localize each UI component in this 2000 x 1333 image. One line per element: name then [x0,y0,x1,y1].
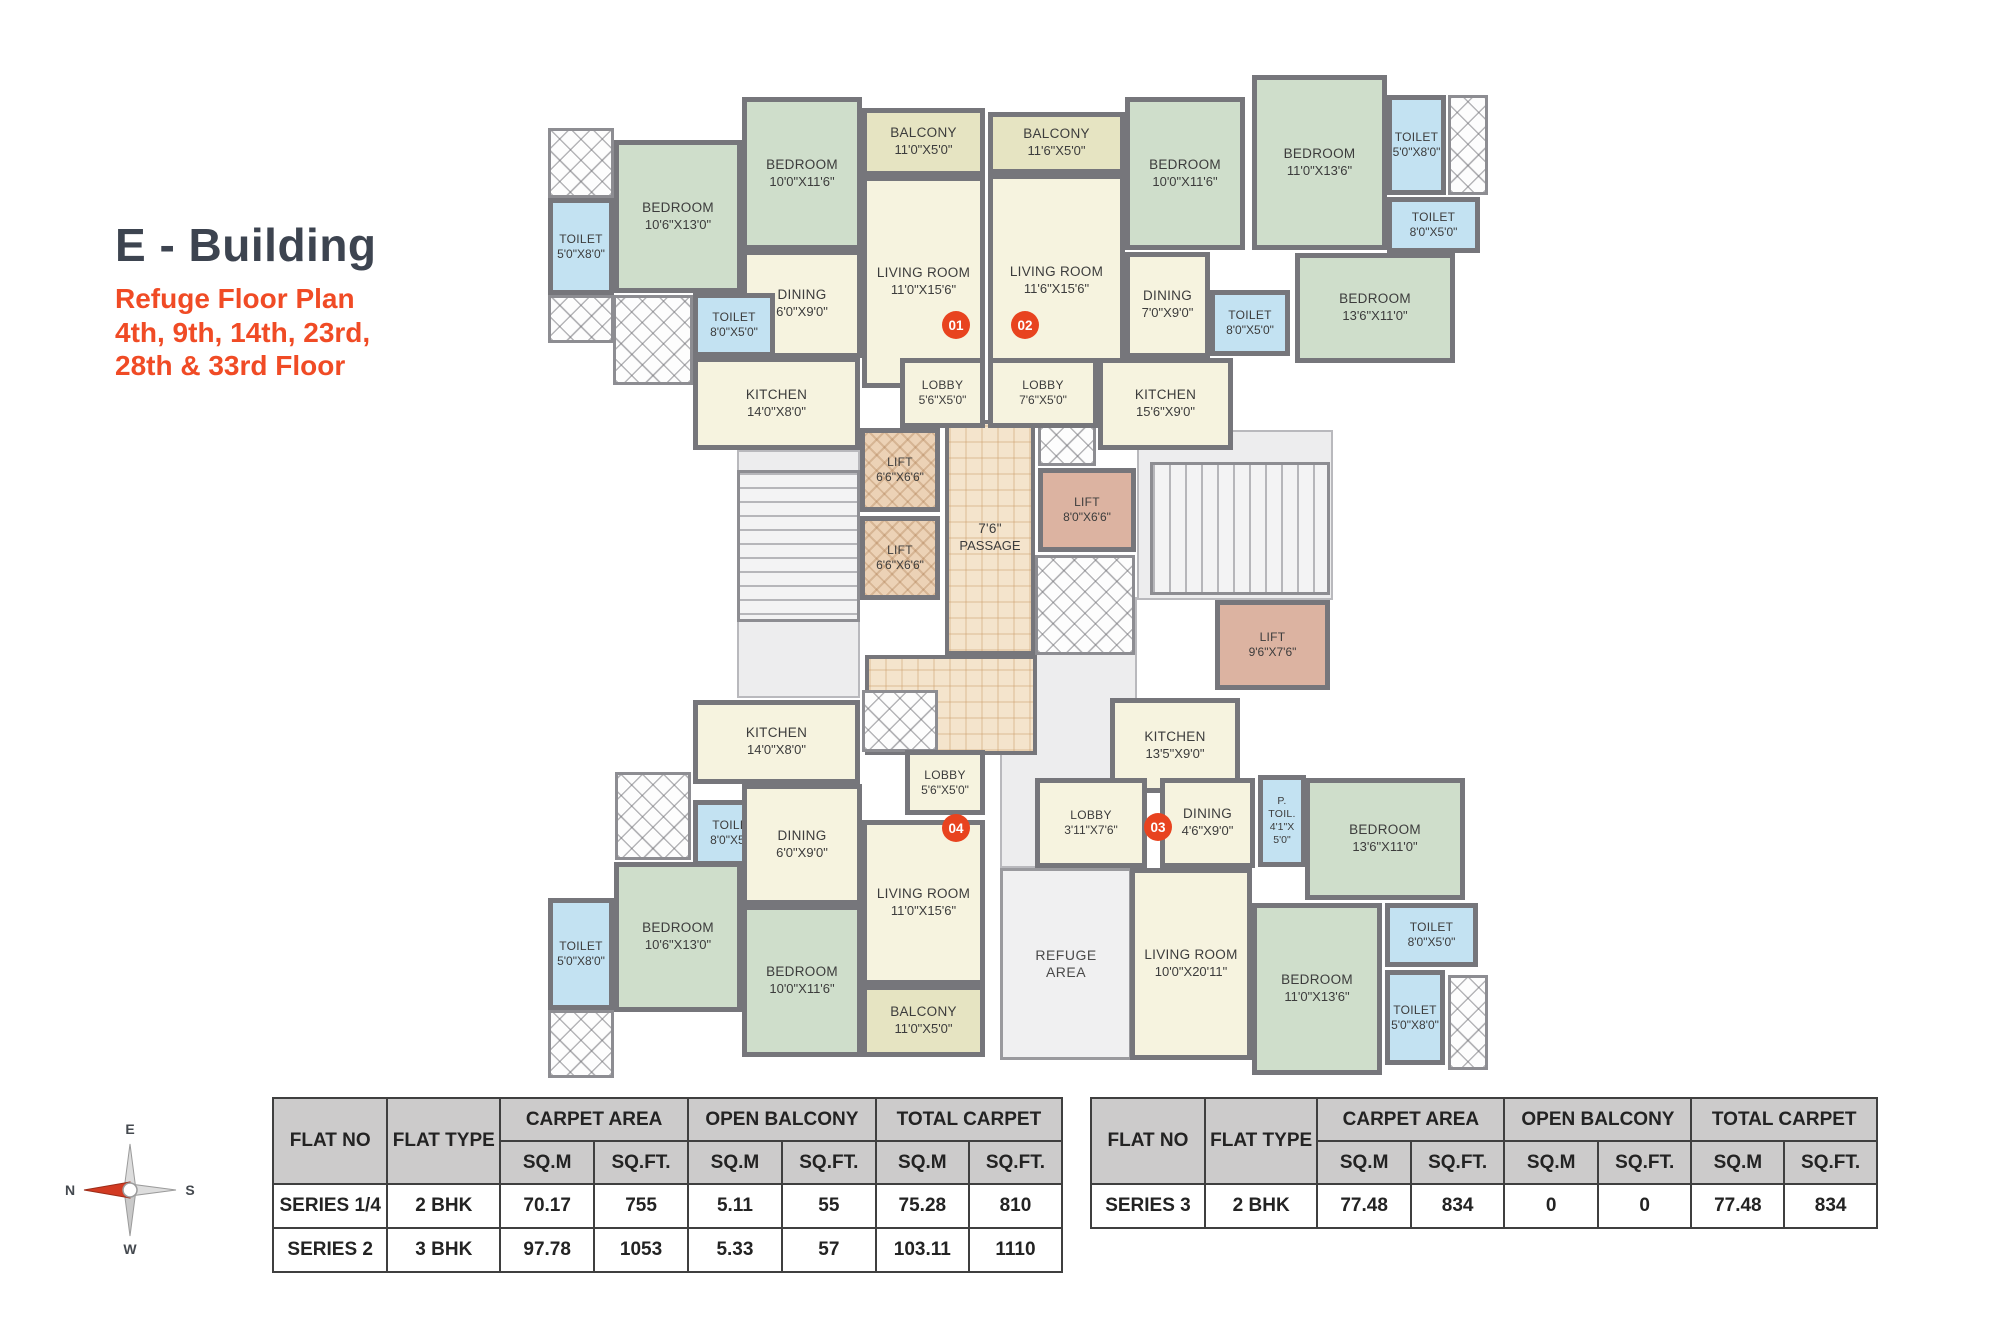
room-dimensions: 8'0"X5'0" [710,325,758,340]
room-label: LOBBY [922,378,964,393]
room-label: LOBBY [1070,808,1112,823]
room-label: DINING [777,287,826,304]
room-toilet-8-0-x5-0: TOILET8'0"X5'0" [1210,290,1290,356]
room-toilet-5-0-x8-0: TOILET5'0"X8'0" [548,198,614,295]
room-label: BALCONY [890,1004,957,1021]
feature-shaft [615,772,691,860]
room-dimensions: 5'6"X5'0" [919,393,967,408]
room-label: TOILET [712,310,756,325]
room-dimensions: 10'0"X20'11" [1155,964,1228,980]
room-dimensions: 14'0"X8'0" [747,404,806,420]
compass-rose: E N S W [62,1122,198,1258]
col-subheader-carpet-area-sq-m: SQ.M [500,1141,594,1184]
room-label: KITCHEN [1135,387,1196,404]
room-bedroom-10-6-x13-0: BEDROOM10'6"X13'0" [614,862,742,1012]
col-group-header-carpet-area: CARPET AREA [1317,1098,1504,1141]
room-living-room-11-6-x15-6: LIVING ROOM11'6"X15'6" [988,174,1125,388]
room-toilet-8-0-x5-0: TOILET8'0"X5'0" [1387,197,1480,253]
room-dimensions: 5'6"X5'0" [921,783,969,798]
col-subheader-carpet-area-sq-ft: SQ.FT. [594,1141,688,1184]
room-dimensions: 14'0"X8'0" [747,742,806,758]
room-label: BEDROOM [766,964,838,981]
table-cell: 834 [1784,1184,1877,1228]
compass-letter-right: S [185,1182,194,1198]
room-lobby-7-6-x5-0: LOBBY7'6"X5'0" [988,358,1098,428]
room-balcony-11-0-x5-0: BALCONY11'0"X5'0" [862,985,985,1057]
room-dimensions: 9'6"X7'6" [1249,645,1297,660]
table-cell: 5.33 [688,1228,782,1272]
room-label: LIFT [1074,495,1100,510]
room-refuge-area: REFUGEAREA [1000,868,1132,1060]
compass-letter-bottom: W [123,1241,137,1257]
room-toilet-5-0-x8-0: TOILET5'0"X8'0" [1385,970,1445,1065]
room-living-room-11-0-x15-6: LIVING ROOM11'0"X15'6" [862,176,985,388]
room-dimensions: 6'6"X6'6" [876,470,924,485]
room-dimensions: 3'11"X7'6" [1064,823,1118,838]
room-dimensions: 5'0"X8'0" [557,954,605,969]
col-group-header-total-carpet: TOTAL CARPET [1691,1098,1877,1141]
room-toilet-5-0-x8-0: TOILET5'0"X8'0" [1387,95,1446,195]
room-dimensions: 6'0"X9'0" [776,845,828,861]
table-cell: 5.11 [688,1184,782,1228]
room-dimensions: 10'6"X13'0" [645,937,711,953]
feature-shaft [548,128,614,198]
room-label: KITCHEN [746,387,807,404]
room-lift-8-0-x6-6: LIFT8'0"X6'6" [1038,468,1136,552]
room-label: BEDROOM [1284,146,1356,163]
room-label: LIFT [887,455,913,470]
feature-stairs-v [1150,462,1330,595]
room-label: TOILET [1228,308,1272,323]
room-dimensions: 6'6"X6'6" [876,558,924,573]
col-group-header-carpet-area: CARPET AREA [500,1098,688,1141]
room-label: LIVING ROOM [877,265,970,282]
room-label: P. TOIL. [1263,795,1301,821]
col-subheader-open-balcony-sq-ft: SQ.FT. [1598,1141,1692,1184]
room-dimensions: 11'0"X15'6" [891,903,956,919]
col-subheader-total-carpet-sq-ft: SQ.FT. [969,1141,1062,1184]
room-label: BEDROOM [766,157,838,174]
room-dimensions: 5'0"X8'0" [1393,145,1441,160]
col-subheader-total-carpet-sq-ft: SQ.FT. [1784,1141,1877,1184]
table-row-series-1-4: SERIES 1/42 BHK70.177555.115575.28810 [273,1184,1062,1228]
col-header-flat-type: FLAT TYPE [1205,1098,1317,1184]
room-bedroom-11-0-x13-6: BEDROOM11'0"X13'6" [1252,903,1382,1075]
room-dimensions: 10'0"X11'6" [1152,174,1217,190]
room-label: BEDROOM [1281,972,1353,989]
room-toilet-8-0-x5-0: TOILET8'0"X5'0" [693,293,775,357]
col-subheader-carpet-area-sq-ft: SQ.FT. [1411,1141,1505,1184]
room-living-room-10-0-x20-11: LIVING ROOM10'0"X20'11" [1130,868,1252,1060]
room-dining-6-0-x9-0: DINING6'0"X9'0" [742,784,862,905]
room-label: TOILET [559,939,603,954]
room-dimensions: 11'6"X15'6" [1024,281,1089,297]
room-dining-7-0-x9-0: DINING7'0"X9'0" [1125,252,1210,358]
col-subheader-total-carpet-sq-m: SQ.M [1691,1141,1784,1184]
room-dimensions: 13'6"X11'0" [1352,839,1417,855]
room-label: TOILET [1410,920,1454,935]
room-label: BEDROOM [1349,822,1421,839]
room-label: DINING [777,828,826,845]
floor-plan: REFUGEAREA7'6"PASSAGELIFT6'6"X6'6"LIFT6'… [0,0,2000,1120]
room-bedroom-10-0-x11-6: BEDROOM10'0"X11'6" [742,97,862,250]
table-cell: 57 [782,1228,876,1272]
col-subheader-carpet-area-sq-m: SQ.M [1317,1141,1411,1184]
room-label: BEDROOM [1339,291,1411,308]
room-kitchen-14-0-x8-0: KITCHEN14'0"X8'0" [693,357,860,450]
table-cell: 77.48 [1317,1184,1411,1228]
col-subheader-open-balcony-sq-ft: SQ.FT. [782,1141,876,1184]
table-cell: 1110 [969,1228,1062,1272]
col-subheader-open-balcony-sq-m: SQ.M [688,1141,782,1184]
flat-number-badge-04: 04 [942,814,970,842]
room-lift-6-6-x6-6: LIFT6'6"X6'6" [860,516,940,600]
room-bedroom-10-0-x11-6: BEDROOM10'0"X11'6" [1125,97,1245,250]
room-bedroom-13-6-x11-0: BEDROOM13'6"X11'0" [1295,253,1455,363]
room-label: KITCHEN [746,725,807,742]
room-balcony-11-6-x5-0: BALCONY11'6"X5'0" [988,112,1125,174]
room-dimensions: 11'0"X5'0" [894,1021,952,1037]
col-subheader-total-carpet-sq-m: SQ.M [876,1141,969,1184]
room-bedroom-10-0-x11-6: BEDROOM10'0"X11'6" [742,905,862,1057]
room-p-toil-4-1-x-5-0: P. TOIL.4'1"X 5'0" [1258,775,1306,867]
room-label: LOBBY [1022,378,1064,393]
room-toilet-5-0-x8-0: TOILET5'0"X8'0" [548,898,614,1010]
room-dimensions: 13'5"X9'0" [1145,746,1204,762]
col-header-flat-no: FLAT NO [1091,1098,1205,1184]
feature-stairs-h [737,470,860,622]
room-lobby-5-6-x5-0: LOBBY5'6"X5'0" [905,750,985,815]
room-label: BEDROOM [642,200,714,217]
room-kitchen-14-0-x8-0: KITCHEN14'0"X8'0" [693,700,860,784]
room-bedroom-11-0-x13-6: BEDROOM11'0"X13'6" [1252,75,1387,250]
col-group-header-total-carpet: TOTAL CARPET [876,1098,1062,1141]
room-dimensions: 6'0"X9'0" [776,304,828,320]
room-dimensions: 5'0"X8'0" [1391,1018,1439,1033]
table-row-series-2: SERIES 23 BHK97.7810535.3357103.111110 [273,1228,1062,1272]
room-dimensions: 10'0"X11'6" [769,174,834,190]
room-dimensions: 11'0"X13'6" [1284,989,1349,1005]
flat-number-badge-01: 01 [942,311,970,339]
room-dimensions: 4'6"X9'0" [1182,823,1234,839]
table-cell: 3 BHK [387,1228,500,1272]
table-cell: 77.48 [1691,1184,1784,1228]
room-label: KITCHEN [1144,729,1205,746]
room-label: TOILET [1412,210,1456,225]
compass-letter-left: N [65,1182,75,1198]
room-label: LIVING ROOM [1144,947,1237,964]
table-cell: 75.28 [876,1184,969,1228]
feature-shaft [613,295,693,385]
room-label: BALCONY [1023,126,1090,143]
room-label: TOILET [1393,1003,1437,1018]
room-dimensions: 8'0"X5'0" [1408,935,1456,950]
table-cell: 0 [1598,1184,1692,1228]
table-cell: 0 [1504,1184,1598,1228]
room-label: DINING [1183,806,1232,823]
col-header-flat-type: FLAT TYPE [387,1098,500,1184]
room-dimensions: 8'0"X6'6" [1063,510,1111,525]
room-lobby-3-11-x7-6: LOBBY3'11"X7'6" [1035,778,1147,868]
room-dimensions: 11'0"X13'6" [1287,163,1352,179]
col-group-header-open-balcony: OPEN BALCONY [688,1098,876,1141]
room-dimensions: PASSAGE [959,538,1020,554]
feature-shaft [548,1010,614,1078]
room-label: LIFT [887,543,913,558]
table-cell: 810 [969,1184,1062,1228]
area-table-right: FLAT NOFLAT TYPECARPET AREAOPEN BALCONYT… [1090,1097,1878,1229]
room-dimensions: 8'0"X5'0" [1226,323,1274,338]
flat-number-badge-02: 02 [1011,311,1039,339]
room-balcony-11-0-x5-0: BALCONY11'0"X5'0" [862,108,985,176]
room-label: DINING [1143,288,1192,305]
room-label: TOILET [559,232,603,247]
room-dimensions: 15'6"X9'0" [1136,404,1195,420]
room-dimensions: 7'6"X5'0" [1019,393,1067,408]
room-dimensions: 10'6"X13'0" [645,217,711,233]
table-cell: 103.11 [876,1228,969,1272]
compass-letter-top: E [125,1122,134,1137]
room-dimensions: 4'1"X 5'0" [1263,821,1301,847]
feature-shaft [548,295,614,343]
room-7-6-passage: 7'6"PASSAGE [945,420,1035,655]
table-cell: 1053 [594,1228,688,1272]
table-cell: 755 [594,1184,688,1228]
col-group-header-open-balcony: OPEN BALCONY [1504,1098,1691,1141]
table-cell: SERIES 1/4 [273,1184,387,1228]
room-dimensions: 11'0"X15'6" [891,282,956,298]
table-cell: 55 [782,1184,876,1228]
room-dimensions: 13'6"X11'0" [1342,308,1407,324]
table-cell: SERIES 3 [1091,1184,1205,1228]
compass-star [84,1144,176,1236]
table-cell: 834 [1411,1184,1505,1228]
room-label: LOBBY [924,768,966,783]
page: E - Building Refuge Floor Plan 4th, 9th,… [0,0,2000,1333]
room-living-room-11-0-x15-6: LIVING ROOM11'0"X15'6" [862,820,985,985]
room-dimensions: 11'0"X5'0" [894,142,952,158]
room-lift-6-6-x6-6: LIFT6'6"X6'6" [860,428,940,512]
room-dimensions: 11'6"X5'0" [1027,143,1085,159]
room-kitchen-15-6-x9-0: KITCHEN15'6"X9'0" [1098,358,1233,450]
room-lobby-5-6-x5-0: LOBBY5'6"X5'0" [900,358,985,428]
room-label: BEDROOM [642,920,714,937]
col-header-flat-no: FLAT NO [273,1098,387,1184]
feature-shaft [862,690,938,752]
room-dimensions: AREA [1046,964,1086,982]
room-label: TOILET [1395,130,1439,145]
table-cell: 70.17 [500,1184,594,1228]
room-dimensions: 10'0"X11'6" [769,981,834,997]
room-toilet-8-0-x5-0: TOILET8'0"X5'0" [1385,903,1478,967]
room-dimensions: 8'0"X5'0" [1410,225,1458,240]
room-bedroom-10-6-x13-0: BEDROOM10'6"X13'0" [614,140,742,293]
room-lift-9-6-x7-6: LIFT9'6"X7'6" [1215,600,1330,690]
room-label: LIVING ROOM [877,886,970,903]
room-label: LIVING ROOM [1010,264,1103,281]
flat-number-badge-03: 03 [1144,813,1172,841]
room-label: 7'6" [978,521,1002,538]
room-label: REFUGE [1035,947,1096,965]
feature-shaft [1448,95,1488,195]
table-cell: 97.78 [500,1228,594,1272]
room-bedroom-13-6-x11-0: BEDROOM13'6"X11'0" [1305,778,1465,900]
room-label: BALCONY [890,125,957,142]
room-label: BEDROOM [1149,157,1221,174]
room-dimensions: 7'0"X9'0" [1142,305,1194,321]
feature-shaft [1448,975,1488,1070]
col-subheader-open-balcony-sq-m: SQ.M [1504,1141,1598,1184]
table-cell: 2 BHK [387,1184,500,1228]
room-dining-4-6-x9-0: DINING4'6"X9'0" [1160,778,1255,868]
feature-shaft [1035,555,1135,655]
table-cell: SERIES 2 [273,1228,387,1272]
room-label: LIFT [1260,630,1286,645]
room-dimensions: 5'0"X8'0" [557,247,605,262]
table-row-series-3: SERIES 32 BHK77.488340077.48834 [1091,1184,1877,1228]
table-cell: 2 BHK [1205,1184,1317,1228]
area-table-left: FLAT NOFLAT TYPECARPET AREAOPEN BALCONYT… [272,1097,1063,1273]
